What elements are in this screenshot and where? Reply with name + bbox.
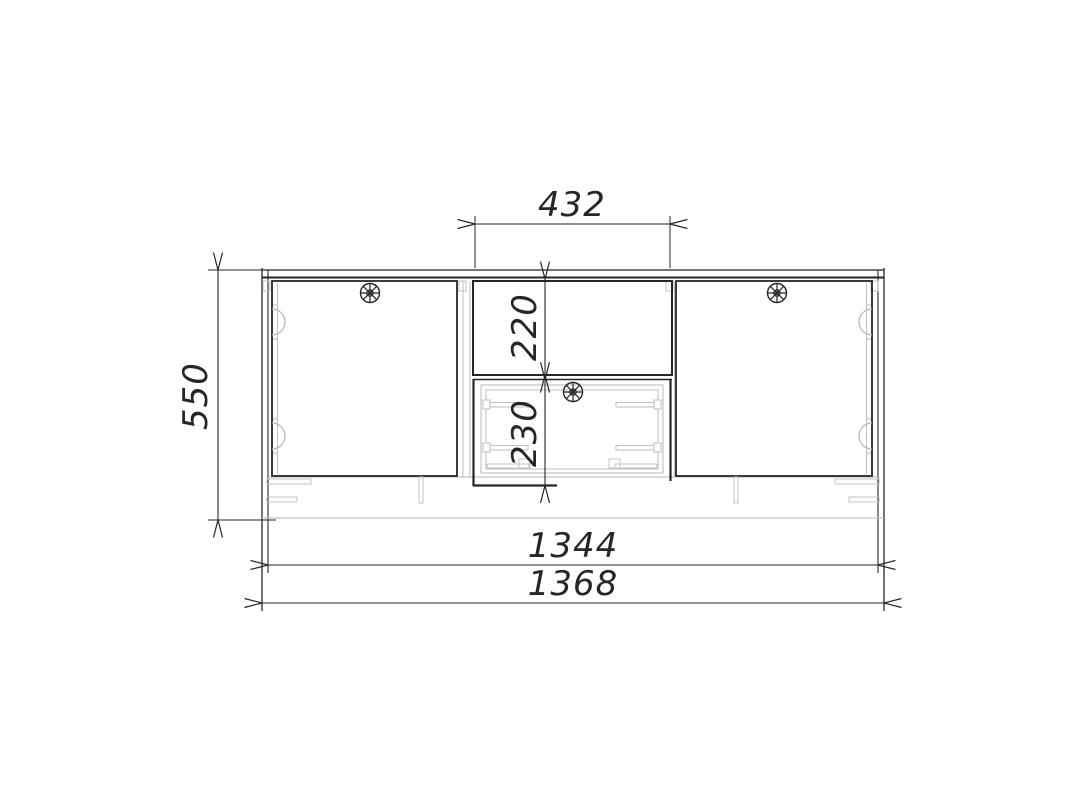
dimension-432: 432 — [475, 185, 670, 268]
hinge-icon — [272, 419, 285, 453]
dim-label-inner-width: 1344 — [528, 526, 619, 566]
drawing-canvas: 432 550 220 230 1344 1368 — [0, 0, 1067, 800]
left-door — [272, 281, 457, 476]
leg-bracket — [267, 497, 297, 502]
drawer — [473, 379, 671, 486]
right-door-panel — [676, 281, 872, 476]
dim-label-niche-height: 220 — [505, 293, 545, 361]
technical-drawing: 432 550 220 230 1344 1368 — [0, 0, 1067, 800]
left-door-panel — [272, 281, 457, 476]
dim-label-overall-height: 550 — [176, 362, 216, 430]
hinge-icon — [859, 419, 872, 453]
dim-label-drawer-height: 230 — [505, 399, 545, 467]
dimension-1344: 1344 — [268, 526, 878, 566]
leg-bracket — [849, 497, 879, 502]
hinge-icon — [272, 305, 285, 339]
connector-block — [263, 281, 270, 291]
drawer-knob-icon — [564, 383, 583, 402]
right-door — [676, 281, 872, 476]
legs — [267, 477, 879, 503]
dimension-230: 230 — [505, 380, 545, 486]
drawer-slide — [616, 400, 661, 409]
hinge-icon — [859, 305, 872, 339]
drawer-bottom-rail — [615, 464, 657, 468]
leg-bracket — [835, 479, 879, 484]
right-door-knob-icon — [768, 284, 787, 303]
open-niche — [473, 281, 672, 380]
niche-opening — [473, 281, 672, 375]
center-leg — [734, 477, 738, 503]
dim-label-overall-width: 1368 — [528, 564, 619, 604]
left-door-knob-icon — [361, 284, 380, 303]
dim-label-niche-width: 432 — [538, 185, 606, 225]
leg-bracket — [267, 479, 311, 484]
dimension-1368: 1368 — [262, 564, 884, 604]
drawer-slide — [616, 443, 661, 452]
center-leg — [419, 477, 423, 503]
dimension-550: 550 — [176, 270, 276, 520]
dimension-220: 220 — [505, 279, 545, 375]
